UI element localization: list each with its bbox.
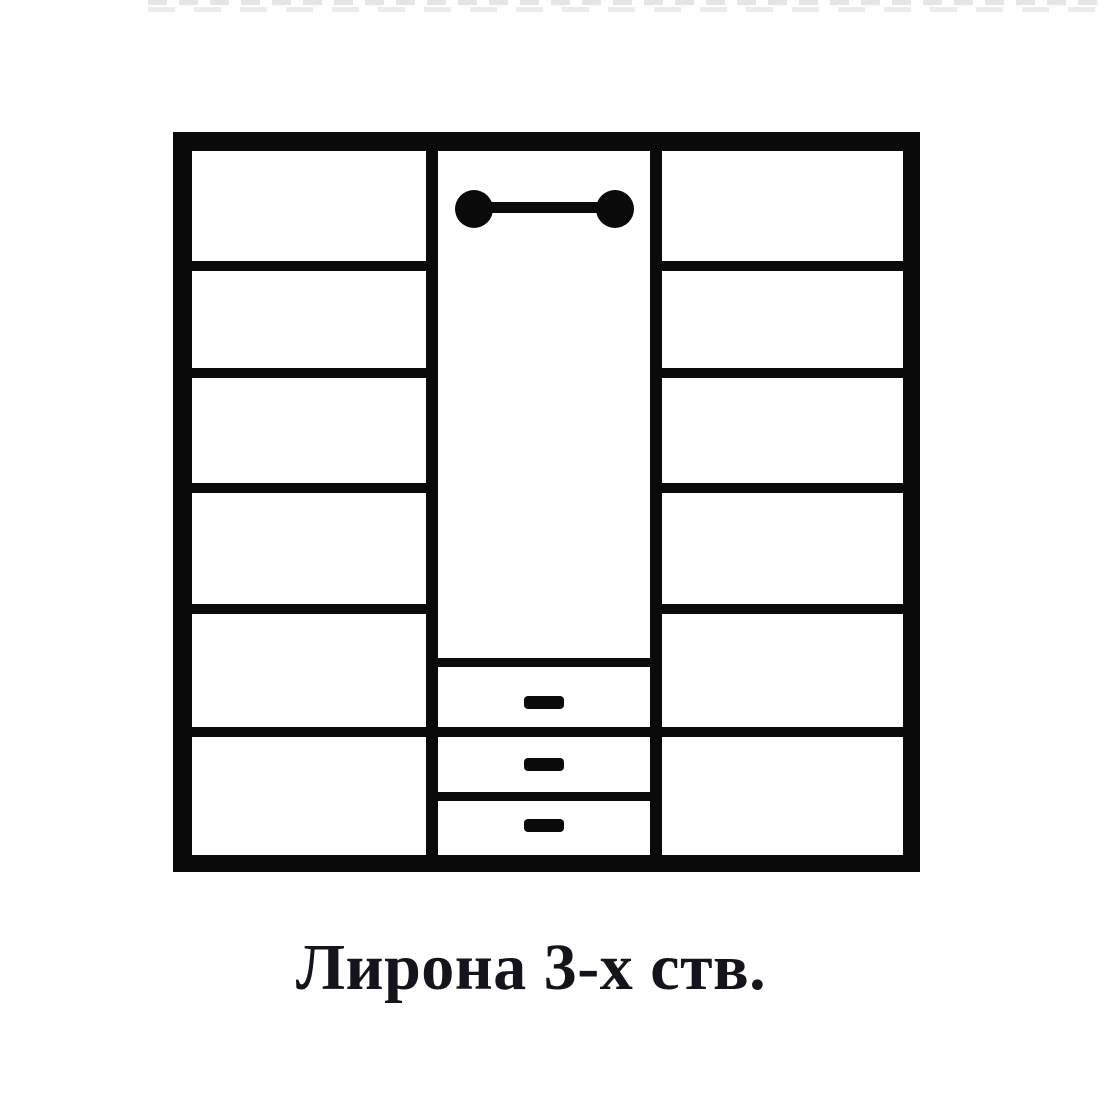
shelf-line bbox=[192, 261, 426, 271]
hanging-section bbox=[438, 151, 650, 855]
drawer-handle-icon bbox=[524, 819, 564, 832]
shelf-line bbox=[192, 604, 426, 614]
shelf-line bbox=[192, 483, 426, 493]
product-title: Лирона 3-х ств. bbox=[0, 930, 1062, 1006]
shelf-line bbox=[662, 727, 903, 737]
left-shelf-column bbox=[192, 151, 426, 855]
wardrobe-diagram bbox=[173, 132, 920, 872]
shelf-line bbox=[662, 483, 903, 493]
hanger-rod-icon bbox=[474, 202, 615, 213]
drawer-handle-icon bbox=[524, 696, 564, 709]
right-center-divider bbox=[650, 151, 662, 855]
shelf-line bbox=[662, 604, 903, 614]
drawer-handle-icon bbox=[524, 758, 564, 771]
shelf-line bbox=[662, 368, 903, 378]
drawer-separator-line bbox=[438, 792, 650, 801]
right-shelf-column bbox=[662, 151, 903, 855]
page: Лирона 3-х ств. bbox=[0, 0, 1100, 1100]
shelf-line bbox=[662, 261, 903, 271]
shelf-line bbox=[192, 727, 426, 737]
shelf-line bbox=[192, 368, 426, 378]
drawer-separator-line bbox=[438, 727, 650, 737]
top-edge-text-remnants bbox=[148, 0, 1100, 14]
left-center-divider bbox=[426, 151, 438, 855]
drawer-stack-top-line bbox=[438, 658, 650, 667]
